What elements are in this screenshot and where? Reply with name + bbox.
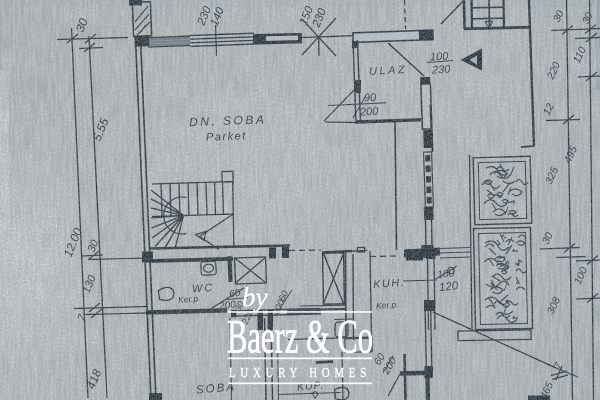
svg-text:LUXURY HOMES: LUXURY HOMES: [229, 365, 371, 380]
svg-text:Baerz & Co: Baerz & Co: [227, 311, 373, 364]
svg-text:by: by: [242, 282, 268, 312]
